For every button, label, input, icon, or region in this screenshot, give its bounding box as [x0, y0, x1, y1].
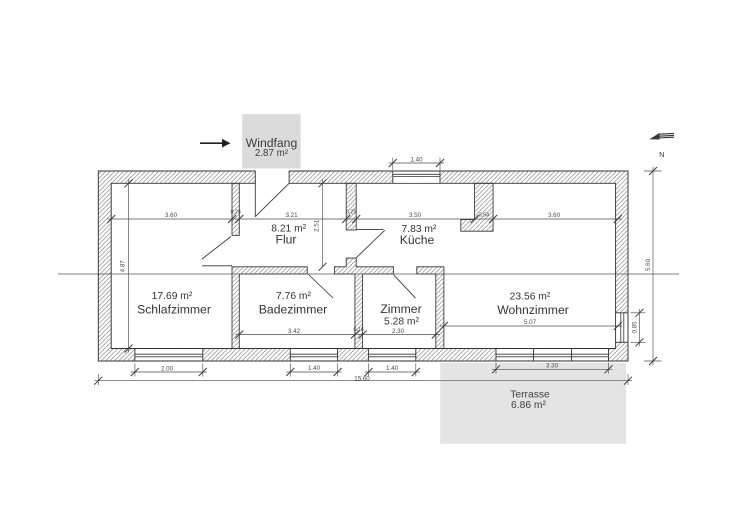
svg-text:7.76 m²: 7.76 m² — [276, 291, 311, 302]
svg-text:1.40: 1.40 — [386, 365, 399, 372]
svg-text:Küche: Küche — [400, 233, 435, 247]
svg-text:Flur: Flur — [276, 233, 297, 247]
svg-text:2.00: 2.00 — [161, 365, 174, 372]
svg-text:5.28 m²: 5.28 m² — [384, 317, 419, 328]
svg-text:23.56 m²: 23.56 m² — [510, 292, 551, 303]
svg-text:3.60: 3.60 — [165, 212, 178, 219]
svg-text:Zimmer: Zimmer — [380, 302, 421, 316]
svg-text:0.29: 0.29 — [346, 209, 357, 215]
svg-text:0.54: 0.54 — [479, 213, 490, 219]
svg-text:Terrasse: Terrasse — [510, 390, 550, 401]
svg-text:3.42: 3.42 — [288, 328, 301, 335]
svg-text:2.30: 2.30 — [392, 328, 405, 335]
svg-text:3.30: 3.30 — [546, 362, 559, 369]
svg-text:15.60: 15.60 — [354, 375, 370, 382]
svg-text:0.16: 0.16 — [353, 327, 364, 333]
svg-text:0.85: 0.85 — [631, 321, 638, 334]
svg-text:3.50: 3.50 — [409, 212, 422, 219]
svg-text:Wohnzimmer: Wohnzimmer — [497, 303, 569, 317]
svg-text:3.21: 3.21 — [285, 212, 298, 219]
svg-text:Schlafzimmer: Schlafzimmer — [137, 303, 211, 317]
svg-text:1.40: 1.40 — [308, 365, 321, 372]
svg-text:5.07: 5.07 — [524, 319, 537, 326]
svg-text:2.87 m²: 2.87 m² — [255, 148, 289, 159]
svg-text:3.60: 3.60 — [548, 212, 561, 219]
svg-text:17.69 m²: 17.69 m² — [152, 291, 193, 302]
svg-text:N: N — [659, 150, 664, 159]
svg-text:0.24: 0.24 — [230, 209, 241, 215]
svg-text:2.51: 2.51 — [313, 219, 320, 232]
svg-text:5.60: 5.60 — [645, 258, 652, 271]
svg-text:Badezimmer: Badezimmer — [259, 303, 327, 317]
svg-text:4.87: 4.87 — [119, 260, 126, 273]
svg-text:6.86 m²: 6.86 m² — [511, 400, 546, 411]
svg-text:1.40: 1.40 — [410, 156, 423, 163]
